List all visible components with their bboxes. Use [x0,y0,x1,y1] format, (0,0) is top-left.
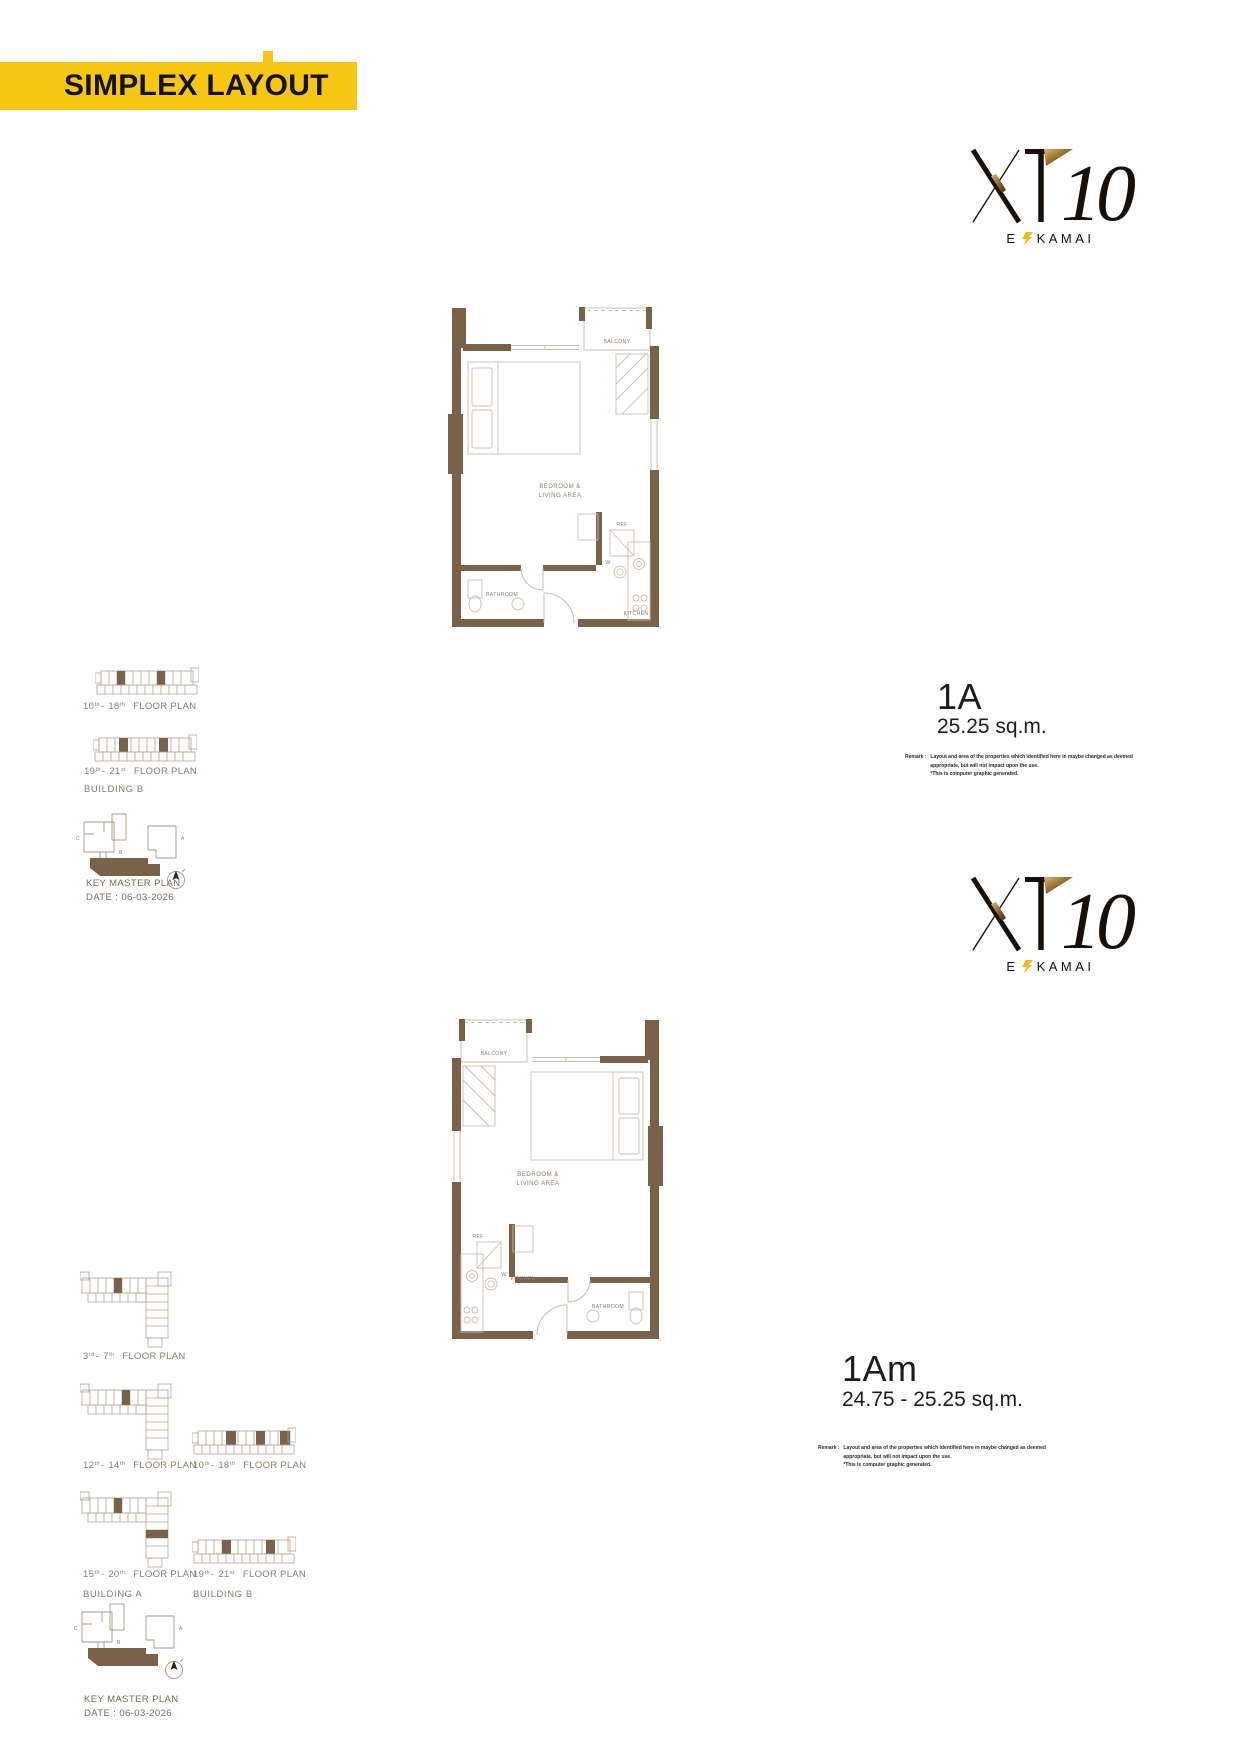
bathroom-label: BATHROOM [486,592,518,598]
remark-block: Remark : Layout and area of the properti… [818,1444,1046,1470]
remark-lines: Layout and area of the properties which … [930,753,1133,779]
banner-notch [263,51,273,62]
floor-from-suffix: th [96,767,101,773]
lightning-icon [1022,232,1034,246]
unit-area: 25.25 sq.m. [937,715,1047,739]
kitchen-fixtures [461,1242,501,1332]
building-label: BUILDING B [84,784,144,795]
floor-from: 15 [83,1569,94,1580]
bathroom-label: BATHROOM [592,1304,624,1310]
floor-range-sep: - [101,1569,104,1580]
logo-e: E [1006,959,1018,974]
floor-to-suffix: th [230,1461,235,1467]
logo-ten: 10 [1061,878,1135,952]
logo-e: E [1006,231,1018,246]
kitchen-label: KITCHEN [624,611,649,617]
lightning-icon [1022,960,1034,974]
floor-to: 7 [103,1351,109,1362]
floor-plan-text: FLOOR PLAN [133,1569,196,1580]
floor-from-suffix: th [95,702,100,708]
floor-plan-text: FLOOR PLAN [122,1351,185,1362]
lshape-diagram-3-7 [80,1270,172,1348]
floor-plan-label: 10th-18thFLOOR PLAN [193,1460,306,1471]
strip-diagram-10-18 [192,1427,296,1457]
floor-plan-text: FLOOR PLAN [243,1569,306,1580]
highlighted-building-mass [88,1648,158,1666]
floor-plan-label: 19th-21stFLOOR PLAN [84,766,197,777]
key-master-plan-date: DATE : 06-03-2026 [84,1708,172,1719]
ref-label: REF [616,522,627,528]
floor-to: 18 [108,701,119,712]
floor-to: 20 [108,1569,119,1580]
building-label: BUILDING A [83,1589,142,1600]
logo-ekkamai: E KAMAI [963,959,1138,974]
room-labels: BEDROOM & LIVING AREA REF W KITCHEN BATH… [486,483,648,617]
page-title: SIMPLEX LAYOUT [0,69,329,103]
floor-plan-text: FLOOR PLAN [133,701,196,712]
bedroom-furniture [463,1066,643,1252]
floor-from: 12 [83,1460,94,1471]
floor-plan-1am: BALCONY [438,1014,663,1354]
floor-plan-text: FLOOR PLAN [243,1460,306,1471]
logo-ekkamai: E KAMAI [963,231,1138,246]
floor-range-sep: - [211,1460,214,1471]
unit-area: 24.75 - 25.25 sq.m. [842,1388,1023,1412]
floor-range-sep: - [101,701,104,712]
unit-name: 1Am [842,1348,918,1390]
remark-label: Remark : [818,1444,839,1470]
bedroom-label-2: LIVING AREA [539,492,582,499]
floor-plan-label: 12th-14thFLOOR PLAN [83,1460,196,1471]
building-a-label: A [179,1626,183,1632]
lshape-diagram-15-20 [80,1490,172,1568]
floor-from: 19 [193,1569,204,1580]
building-b-label: B [119,850,123,856]
building-label: BUILDING B [193,1589,253,1600]
kitchen-label: KITCHEN [511,1276,536,1282]
logo-ten: 10 [1061,150,1135,224]
floor-to: 21 [109,766,120,777]
bedroom-label-1: BEDROOM & [539,483,581,490]
floor-range-sep: - [101,1460,104,1471]
building-c-label: C [74,1626,78,1632]
key-master-plan-diagram: C A B [60,1602,190,1688]
brochure-page: SIMPLEX LAYOUT 10 E KAMAI [0,0,1240,1754]
floor-range-sep: - [211,1569,214,1580]
washer-label: W [605,560,610,566]
floor-range-sep: - [96,1351,99,1362]
key-master-plan-title: KEY MASTER PLAN [84,1694,179,1705]
xt-ekkamai-logo: 10 E KAMAI [963,138,1138,246]
remark-line: appropriate, but will not impact upon th… [930,762,1133,771]
floor-to: 21 [218,1569,229,1580]
floor-plan-label: 10th-18thFLOOR PLAN [83,701,196,712]
logo-kamai: KAMAI [1037,231,1095,246]
floor-from-suffix: th [95,1570,100,1576]
balcony-area: BALCONY [579,307,652,350]
floor-to-suffix: st [121,767,126,773]
interior-walls [509,1224,650,1283]
floor-plan-label: 15th-20thFLOOR PLAN [83,1569,196,1580]
floor-from: 10 [193,1460,204,1471]
xt10-logo-mark: 10 [963,866,1138,952]
title-banner: SIMPLEX LAYOUT [0,62,357,110]
floor-to-suffix: th [120,702,125,708]
floor-plan-label: 3rd-7thFLOOR PLAN [83,1351,186,1362]
lshape-diagram-12-14 [80,1382,172,1460]
building-b-label: B [117,1640,121,1646]
strip-diagram-19-21 [192,1536,296,1566]
ref-label: REF [472,1234,483,1240]
strip-diagram-10-18 [95,667,199,697]
floor-plan-text: FLOOR PLAN [133,1460,196,1471]
floor-to-suffix: th [109,1352,114,1358]
room-labels: BEDROOM & LIVING AREA REF W KITCHEN BATH… [472,1171,624,1310]
floor-to-suffix: th [120,1570,125,1576]
balcony-label: BALCONY [481,1051,508,1057]
wardrobe [616,354,648,414]
remark-line: *This is computer graphic generated. [843,1461,1046,1470]
floor-to: 18 [218,1460,229,1471]
highlighted-building-mass [90,858,160,876]
interior-walls [461,512,602,571]
floor-to-suffix: st [230,1570,235,1576]
floor-from-suffix: rd [89,1352,95,1358]
doors [521,568,574,623]
unit-name: 1A [937,676,982,718]
floor-from-suffix: th [205,1461,210,1467]
logo-kamai: KAMAI [1037,959,1095,974]
floor-from-suffix: th [95,1461,100,1467]
bedroom-label-1: BEDROOM & [517,1171,559,1178]
remark-line: *This is computer graphic generated. [930,770,1133,779]
washer-label: W [501,1272,506,1278]
floor-plan-label: 19th-21stFLOOR PLAN [193,1569,306,1580]
compass-icon [166,1659,184,1679]
balcony-area: BALCONY [459,1019,532,1062]
outer-walls [448,308,659,627]
building-c-label: C [76,836,80,842]
floor-range-sep: - [102,766,105,777]
building-a-label: A [181,836,185,842]
floor-from: 3 [83,1351,89,1362]
bedroom-label-2: LIVING AREA [517,1180,560,1187]
remark-line: appropriate, but will not impact upon th… [843,1453,1046,1462]
remark-label: Remark : [905,753,926,779]
remark-line: Layout and area of the properties which … [930,753,1133,762]
floor-from: 19 [84,766,95,777]
xt-ekkamai-logo: 10 E KAMAI [963,866,1138,974]
doors [537,1280,590,1335]
floor-from: 10 [83,701,94,712]
floor-plan-text: FLOOR PLAN [134,766,197,777]
key-master-plan-date: DATE : 06-03-2026 [86,892,174,903]
strip-diagram-19-21 [93,734,197,764]
floor-from-suffix: th [205,1570,210,1576]
wardrobe [463,1066,495,1126]
xt10-logo-mark: 10 [963,138,1138,224]
remark-lines: Layout and area of the properties which … [843,1444,1046,1470]
remark-block: Remark : Layout and area of the properti… [905,753,1133,779]
floor-to: 14 [108,1460,119,1471]
remark-line: Layout and area of the properties which … [843,1444,1046,1453]
kitchen-fixtures [610,530,650,620]
bedroom-furniture [468,354,648,540]
floor-plan-1a: BALCONY [448,302,673,642]
balcony-label: BALCONY [604,339,631,345]
floor-to-suffix: th [120,1461,125,1467]
key-master-plan-title: KEY MASTER PLAN [86,878,181,889]
